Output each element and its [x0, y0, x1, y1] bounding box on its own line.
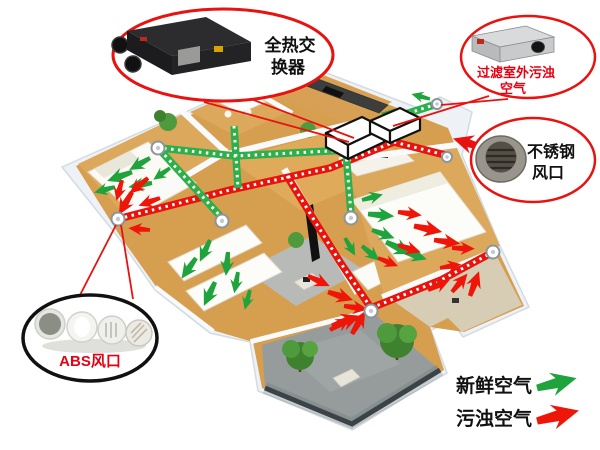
abs-vent-label: ABS风口: [59, 353, 121, 370]
steel-vent-product-image: [476, 136, 526, 182]
supply-vent: [216, 215, 229, 228]
exhaust-wall-cap: [442, 152, 452, 162]
exhaust-vent: [112, 213, 125, 226]
filter-callout: 过滤室外污浊 空气: [461, 16, 595, 98]
legend: 新鲜空气 污浊空气: [456, 367, 582, 434]
steel-vent-label-line1: 不锈钢: [527, 142, 575, 161]
legend-polluted-air-label: 污浊空气: [456, 407, 532, 430]
filter-label-line2: 空气: [500, 81, 526, 96]
exhaust-vent: [487, 246, 500, 259]
legend-fresh-air: 新鲜空气: [456, 367, 579, 400]
steel-vent-label-line2: 风口: [532, 164, 564, 182]
abs-vent-callout: ABS风口: [23, 295, 157, 381]
floor-plan-illustration: 全热交 换器 过滤室外污浊 空气 不锈钢 风口: [0, 0, 600, 450]
fresh-air-arrow-icon: [534, 367, 579, 400]
heat-exchanger-callout: 全热交 换器: [112, 9, 333, 101]
exhaust-vent: [365, 305, 378, 318]
legend-fresh-air-label: 新鲜空气: [456, 374, 532, 397]
heat-exchanger-label-line2: 换器: [271, 57, 306, 77]
ventilation-diagram: 全热交 换器 过滤室外污浊 空气 不锈钢 风口: [0, 0, 600, 450]
heat-exchanger-label-line1: 全热交: [264, 35, 316, 55]
filter-label-line1: 过滤室外污浊: [477, 65, 555, 80]
polluted-air-arrow-icon: [534, 398, 582, 433]
steel-vent-callout: 不锈钢 风口: [471, 118, 595, 202]
plant: [288, 232, 304, 248]
legend-polluted-air: 污浊空气: [456, 398, 582, 433]
supply-vent: [152, 142, 165, 155]
intake-wall-cap: [432, 99, 442, 109]
supply-vent: [345, 212, 358, 225]
